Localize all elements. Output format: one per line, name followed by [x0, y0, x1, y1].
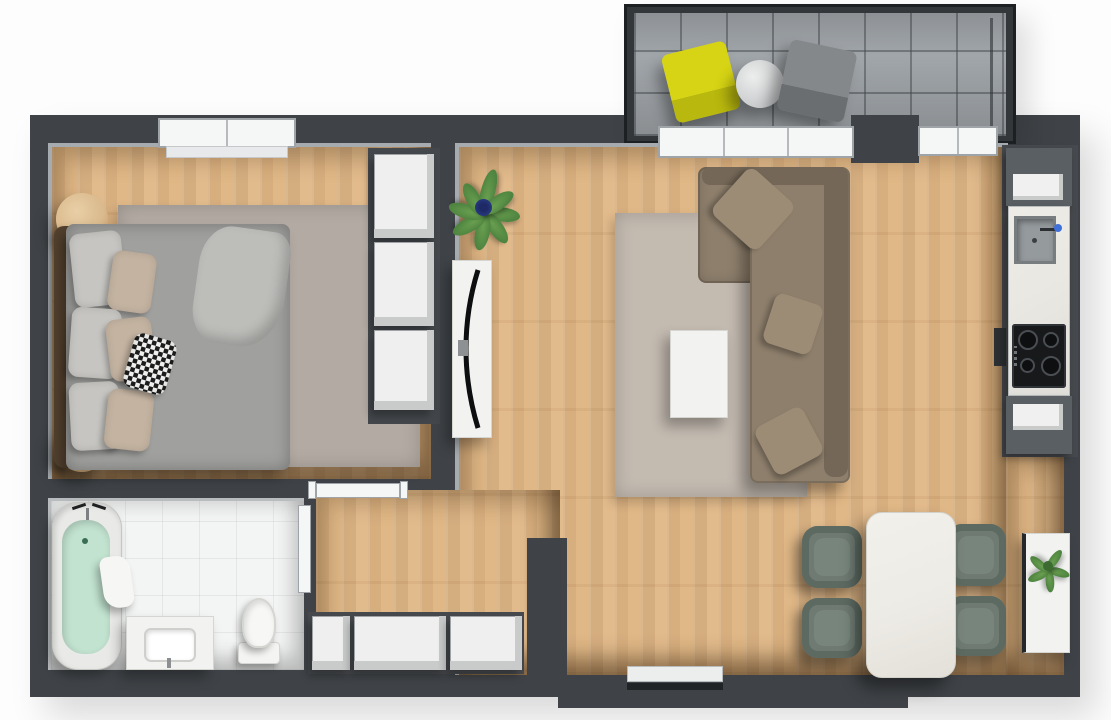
plant-flower: [475, 199, 492, 216]
kitchen-lower-cabinet: [1006, 396, 1072, 454]
living-plant: [444, 162, 528, 258]
dining-table: [866, 512, 956, 678]
hallway-living-wall: [527, 538, 567, 675]
bedroom-door-jamb-left: [308, 481, 316, 499]
toilet-bowl: [242, 598, 276, 648]
bedroom-door-jamb-right: [400, 481, 408, 499]
wardrobe-section: [374, 330, 434, 410]
vanity-faucet: [167, 658, 171, 668]
tv: [456, 266, 486, 432]
kitchen-upper-cabinet: [1006, 148, 1072, 206]
wardrobe-section: [374, 154, 434, 238]
bathtub-drain: [82, 538, 88, 544]
bathtub-spout: [86, 508, 89, 520]
cooktop-controls: [1014, 346, 1017, 366]
cooktop-burner: [1043, 332, 1059, 348]
window-pillar: [851, 115, 919, 163]
sideboard-plant: [1026, 544, 1070, 592]
balcony-door: [658, 126, 854, 158]
vanity-basin: [144, 628, 196, 662]
coffee-table: [670, 330, 728, 418]
floor-plan: [0, 0, 1111, 720]
cooktop-burner: [1041, 356, 1061, 376]
bedroom-window-sill: [166, 146, 288, 158]
closet-section: [354, 616, 446, 670]
cooktop-burner: [1018, 330, 1038, 350]
closet-section: [312, 616, 350, 670]
bedroom-window: [158, 118, 296, 148]
bed-pillow: [106, 249, 158, 315]
kitchen-faucet-handle: [1054, 224, 1062, 232]
balcony-window: [918, 126, 998, 156]
entrance-threshold: [627, 666, 723, 682]
dining-chair: [802, 598, 862, 658]
closet-section: [450, 616, 522, 670]
entry-wall-step: [558, 695, 908, 708]
bathroom-door-leaf: [298, 505, 311, 593]
cooktop-burner: [1020, 358, 1035, 373]
balcony-table: [736, 60, 784, 108]
kitchen-cooktop: [1012, 324, 1066, 388]
wardrobe-section: [374, 242, 434, 326]
sofa-backrest-top: [702, 167, 848, 185]
balcony-railing-divider: [990, 18, 993, 134]
kitchen-duct: [994, 328, 1006, 366]
sofa-backrest: [824, 171, 848, 477]
sink-drain: [1032, 238, 1037, 243]
dining-chair: [802, 526, 862, 588]
bed-pillow: [103, 388, 155, 452]
entrance-door-leaf: [627, 683, 723, 690]
bedroom-door-leaf: [316, 483, 400, 498]
